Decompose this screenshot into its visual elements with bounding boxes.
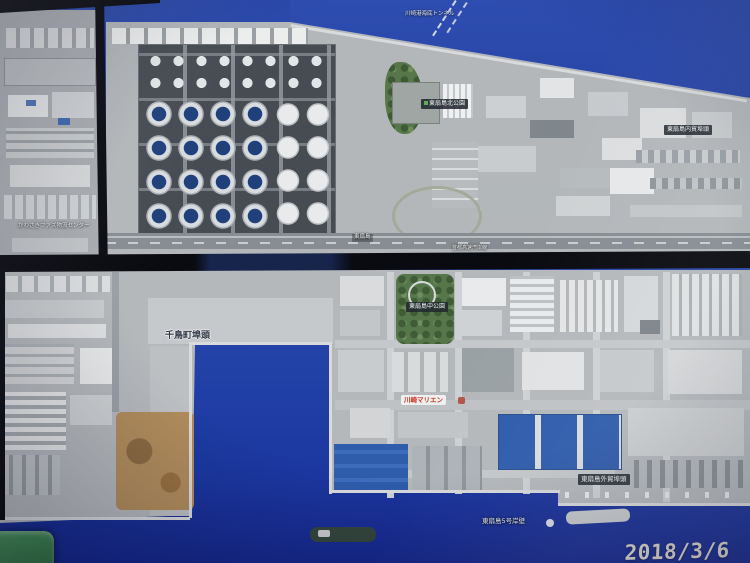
wharf-edge-line — [0, 517, 190, 520]
building — [486, 96, 526, 118]
wharf-edge-line — [189, 344, 192, 518]
label-bayshore-route: 首都高速湾岸線 — [452, 246, 487, 251]
building — [6, 28, 94, 48]
building — [462, 278, 506, 306]
label-domestic-wharf: 東扇島内貿埠頭 — [664, 125, 712, 135]
crane-row — [565, 492, 745, 498]
label-tunnel: 川崎港海底トンネル — [405, 12, 454, 18]
building — [480, 188, 550, 210]
building — [4, 300, 104, 318]
building — [392, 352, 448, 392]
building — [340, 276, 384, 306]
timestamp-text: 2018/3/6 15:57 — [624, 536, 750, 563]
building — [12, 238, 88, 252]
building — [58, 118, 70, 125]
marker-icon — [546, 519, 554, 527]
building — [8, 95, 48, 117]
wharf-edge-line — [558, 503, 750, 506]
building — [70, 395, 112, 425]
blue-warehouses — [498, 414, 622, 470]
label-foreign-wharf-text: 東扇島外貿埠頭 — [581, 475, 627, 483]
label-island-text: 東扇島 — [354, 234, 371, 240]
building — [26, 100, 36, 106]
small-tanks — [141, 47, 333, 93]
label-chidori-wharf-text: 千鳥町埠頭 — [165, 331, 210, 341]
label-central-park: 東扇島中公園 — [406, 302, 448, 312]
building — [478, 146, 536, 172]
label-marien: 川崎マリエン — [401, 395, 446, 405]
label-berth5: 東扇島5号岸壁 — [482, 518, 525, 525]
label-north-park: 東扇島北公園 — [421, 99, 468, 109]
building — [338, 350, 384, 392]
building — [340, 310, 380, 336]
highway — [106, 233, 750, 249]
label-faz-center-text: かわさきファズ物流センター — [18, 223, 90, 229]
building — [462, 310, 502, 336]
ship-superstructure — [318, 530, 330, 537]
panel-seam-horizontal — [0, 251, 750, 272]
blue-warehouse — [334, 444, 408, 492]
building — [556, 196, 610, 216]
building — [8, 324, 106, 338]
blue-top-tanks — [141, 95, 269, 231]
label-chidori-wharf: 千鳥町埠頭 — [165, 332, 210, 341]
building — [458, 397, 465, 404]
building — [560, 280, 618, 332]
label-bayshore-route-text: 首都高速湾岸線 — [452, 245, 487, 251]
trailer-rows — [0, 392, 66, 450]
ship-dark — [310, 527, 376, 542]
wharf-edge-line — [189, 342, 332, 345]
timestamp: 2018/3/6 15:57 — [570, 512, 750, 563]
building — [350, 408, 390, 438]
green-handle — [0, 531, 54, 563]
building — [540, 78, 574, 98]
label-marien-text: 川崎マリエン — [404, 396, 443, 404]
building — [6, 128, 94, 158]
quay-warehouse-row — [112, 28, 308, 44]
tank-farm — [138, 44, 336, 234]
label-north-park-text: 東扇島北公園 — [429, 100, 465, 107]
lane-line — [106, 236, 750, 238]
building — [530, 120, 574, 138]
building — [640, 320, 660, 334]
building — [510, 276, 554, 332]
label-central-park-text: 東扇島中公園 — [409, 303, 445, 310]
dirt-lot — [116, 412, 194, 510]
wharf-edge-line — [329, 344, 332, 494]
building — [52, 92, 94, 118]
building — [628, 408, 744, 456]
building — [630, 205, 742, 217]
building — [4, 195, 96, 219]
building — [6, 276, 110, 292]
building — [80, 348, 114, 384]
building — [522, 352, 584, 390]
aerial-map-photo: 川崎港海底トンネル 東扇島北公園 東扇島内貿埠頭 かわさきファズ物流センター 東… — [0, 0, 750, 563]
wharf-edge-line — [330, 490, 560, 493]
building — [668, 350, 742, 394]
container-rows — [650, 178, 742, 189]
park-icon — [424, 101, 428, 105]
building — [412, 446, 482, 492]
label-island: 東扇島 — [352, 234, 373, 242]
container-rows — [0, 455, 60, 495]
building — [672, 274, 742, 336]
building — [4, 344, 74, 384]
road — [112, 272, 119, 412]
building — [588, 92, 628, 116]
label-foreign-wharf: 東扇島外貿埠頭 — [578, 474, 630, 485]
label-domestic-wharf-text: 東扇島内貿埠頭 — [667, 126, 709, 133]
lane-dashes — [106, 242, 750, 244]
label-berth5-text: 東扇島5号岸壁 — [482, 517, 525, 525]
building — [462, 348, 514, 392]
container-rows — [626, 460, 744, 488]
building — [4, 58, 96, 86]
label-faz-center: かわさきファズ物流センター — [18, 224, 90, 230]
building — [610, 168, 654, 194]
building — [398, 412, 468, 438]
container-rows — [636, 150, 740, 163]
building — [600, 350, 654, 392]
frame-left-edge — [0, 270, 5, 520]
label-tunnel-text: 川崎港海底トンネル — [405, 11, 454, 17]
building — [10, 165, 90, 187]
white-tanks — [271, 95, 333, 231]
